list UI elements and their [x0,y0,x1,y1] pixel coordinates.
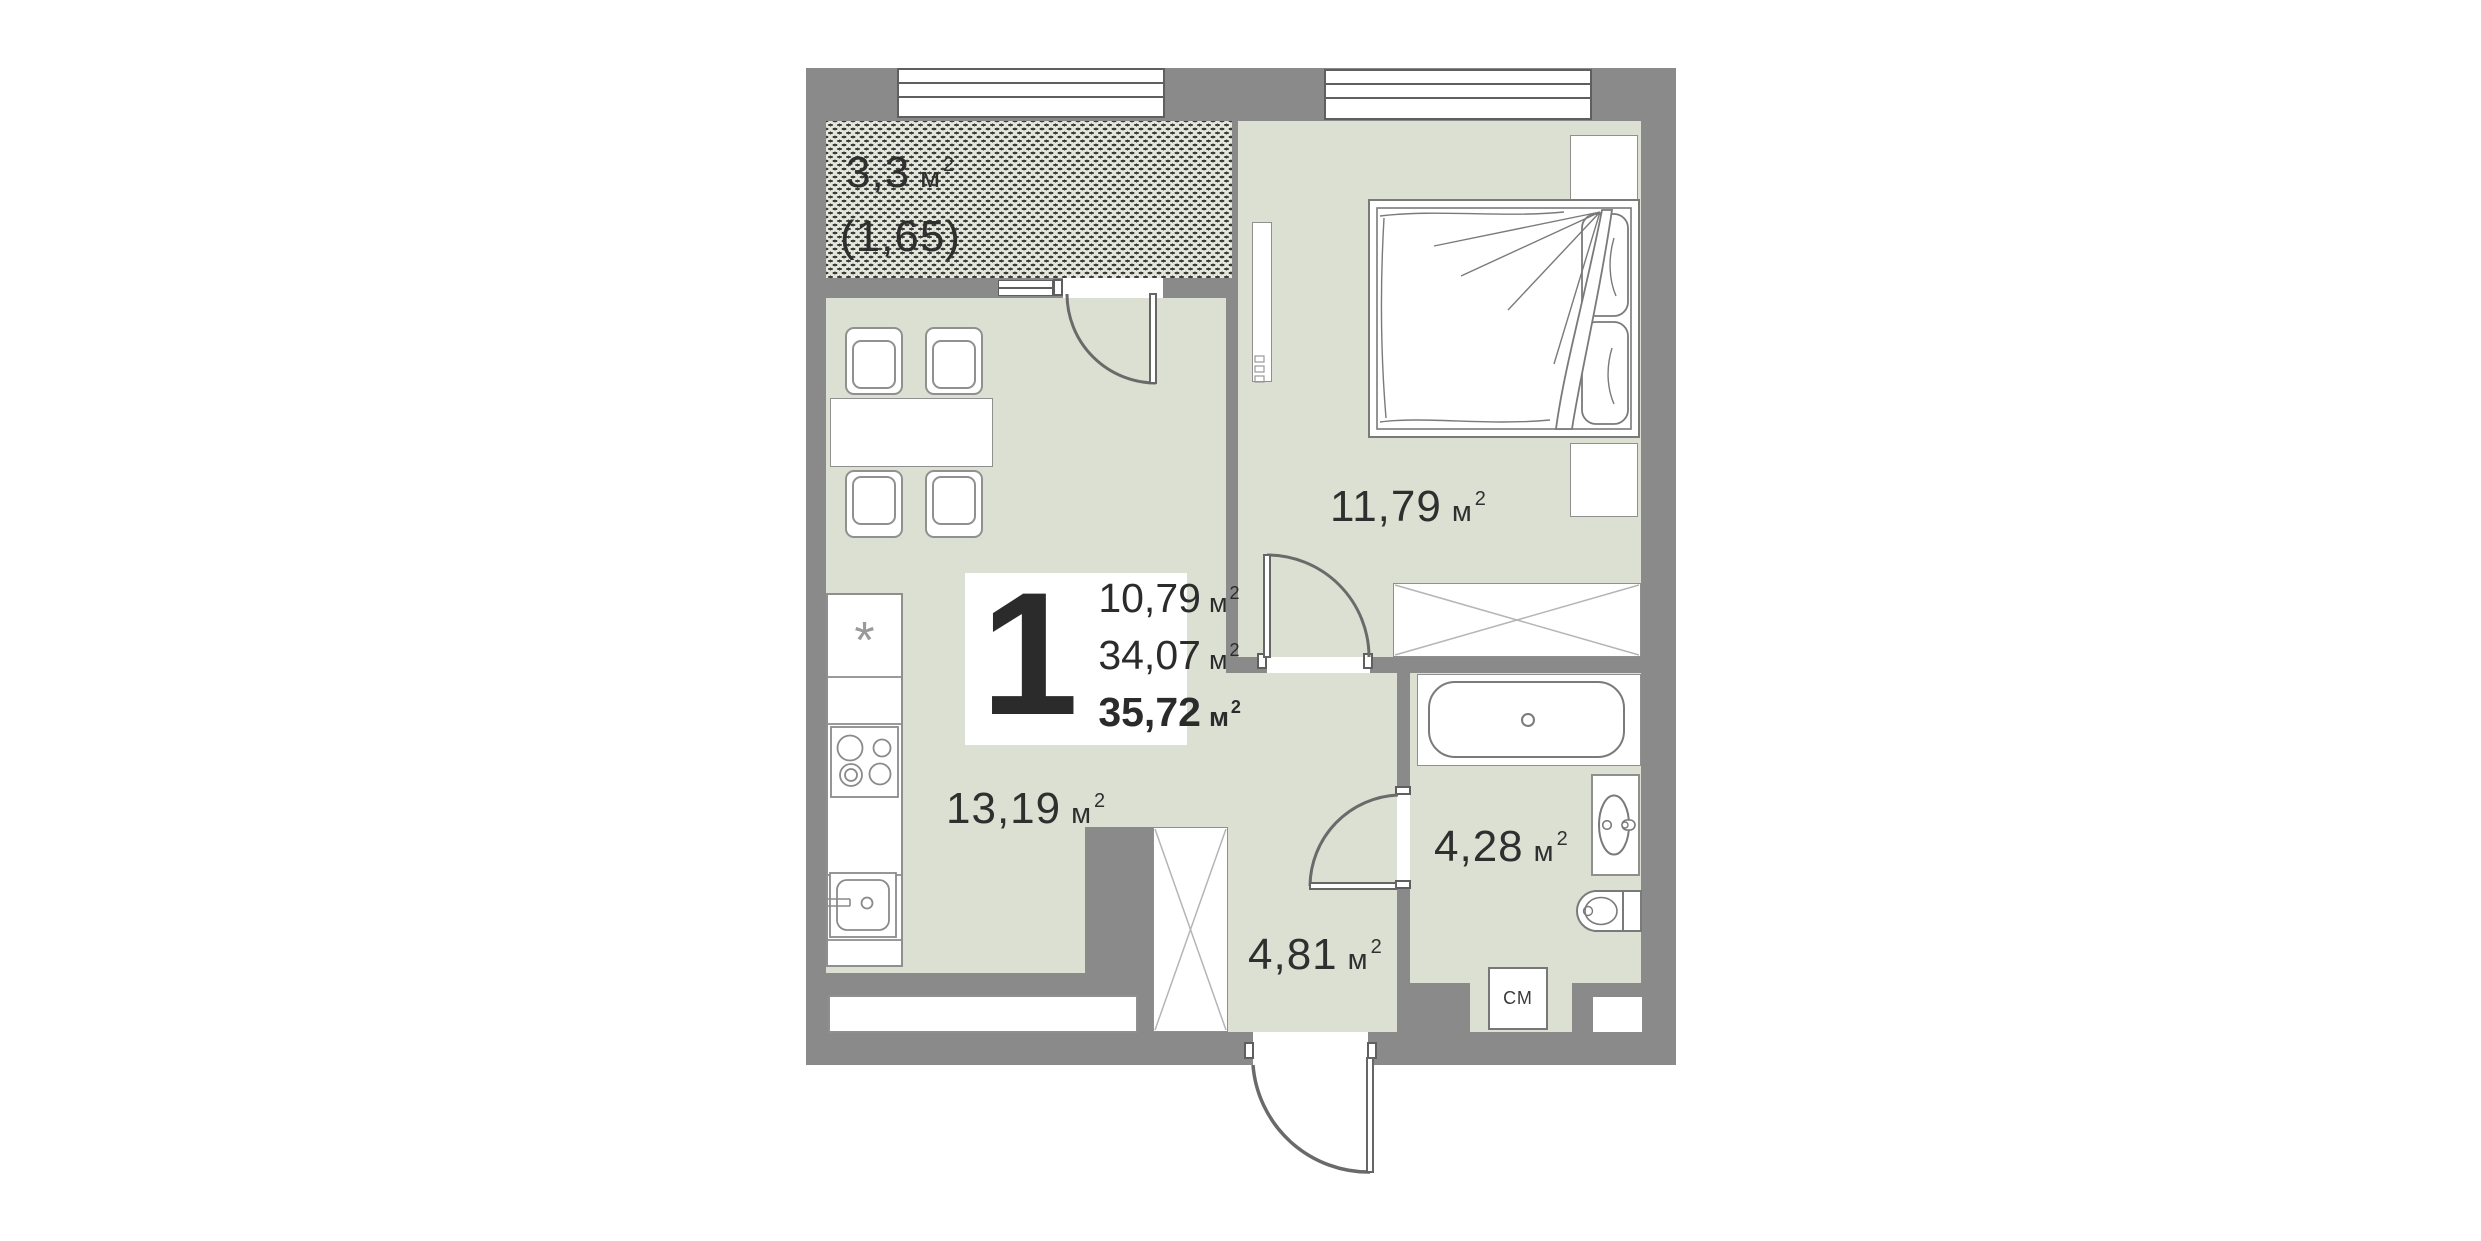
toilet [1577,891,1641,931]
bedroom-door [1264,555,1369,657]
bathroom-door [1310,795,1398,889]
kitchen-sink [828,873,896,937]
wardrobe-x-lines [1155,829,1226,1030]
balcony-door [1067,294,1156,383]
bathtub-inner [1429,682,1624,757]
bathroom-sink [1599,796,1635,855]
stove [831,727,898,797]
plan-sketch-overlay [806,68,1676,1190]
entrance-door [1253,1058,1373,1172]
double-bed [1369,200,1639,437]
tv-detail [1255,356,1264,382]
closet-x-lines [1395,585,1639,655]
floor-plan: * СМ 1 10,79м2 34,07м2 35,72м2 3,3м2 (1, [806,68,1676,1190]
